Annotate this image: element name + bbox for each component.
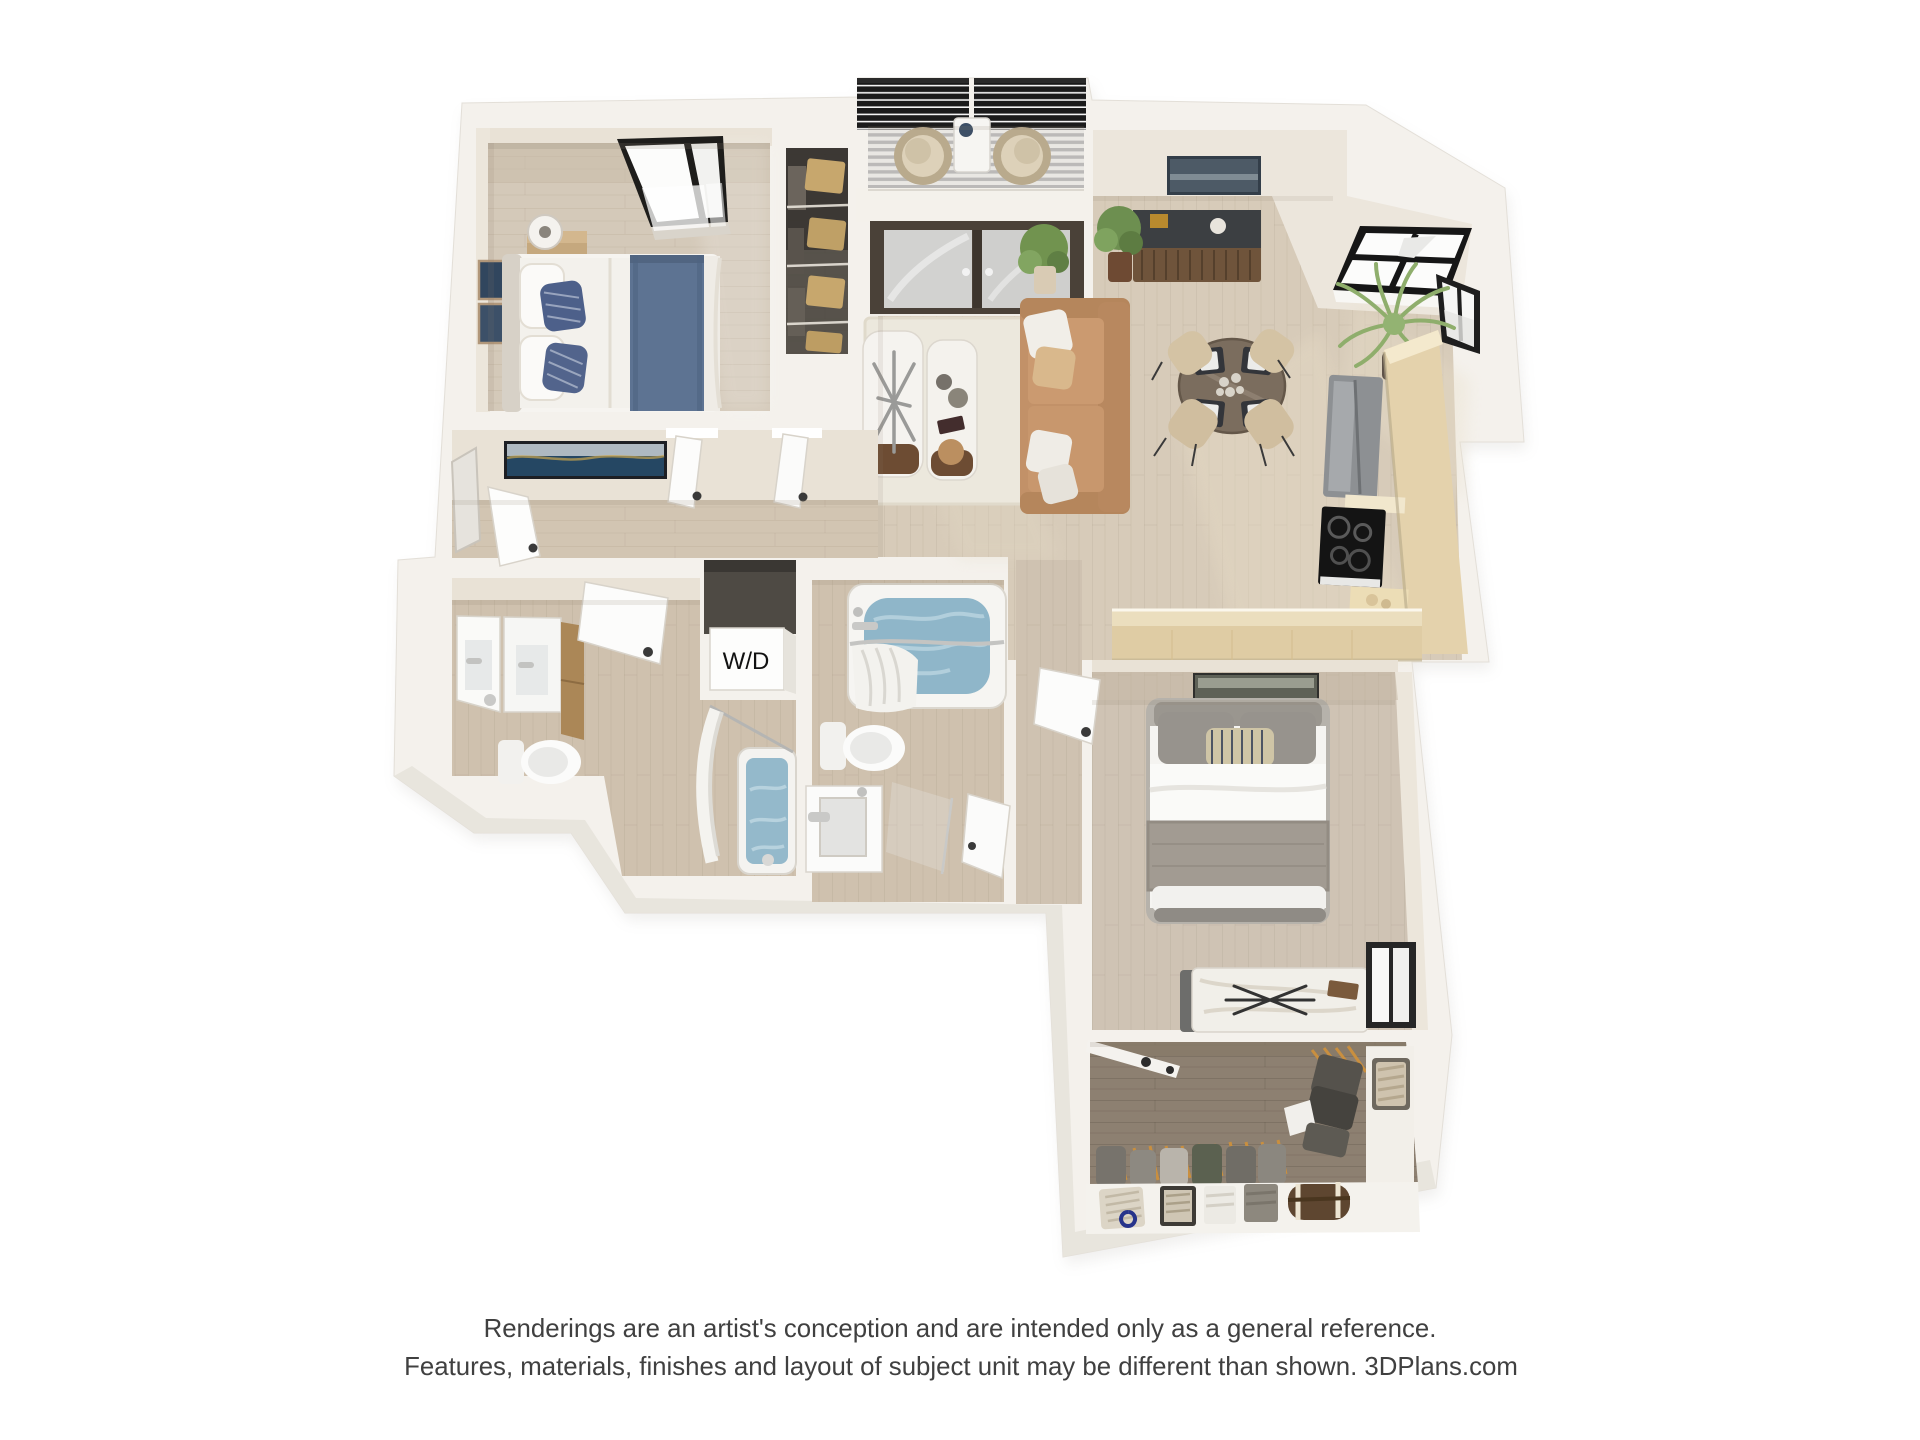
svg-text:Features, materials, finishes: Features, materials, finishes and layout… (404, 1353, 1518, 1381)
svg-text:W/D: W/D (723, 648, 770, 675)
svg-text:Renderings are an artist's con: Renderings are an artist's conception an… (484, 1315, 1437, 1343)
